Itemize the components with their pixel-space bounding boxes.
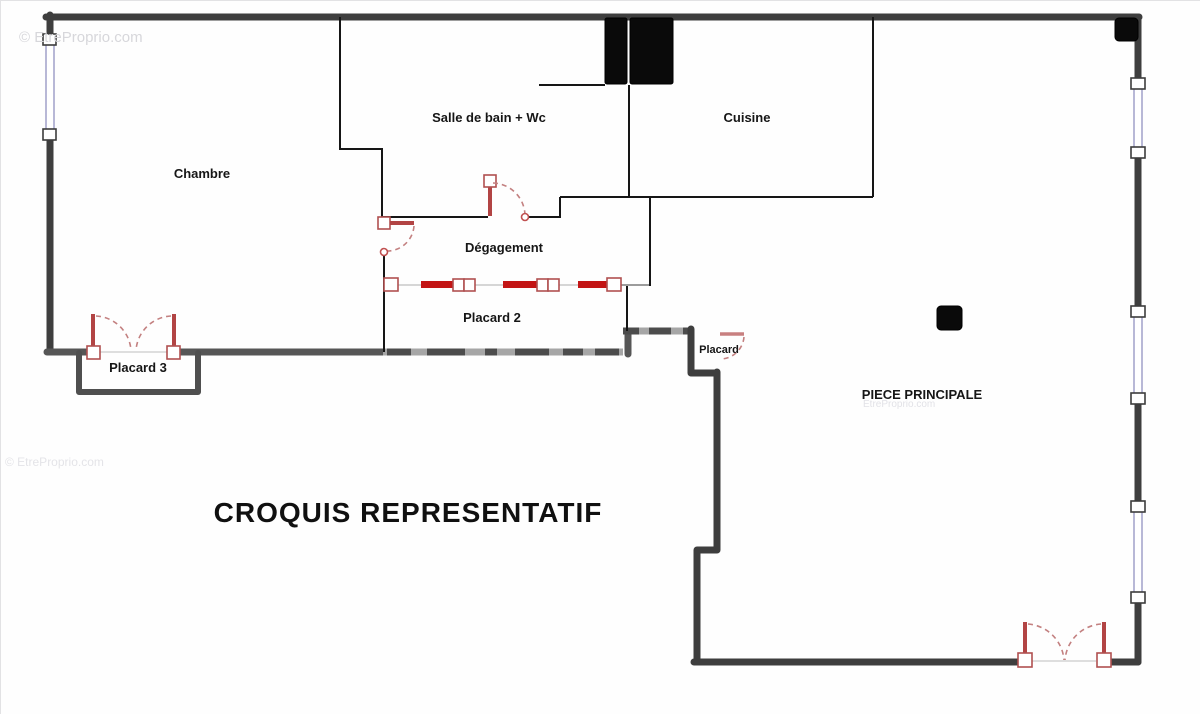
room-column — [937, 306, 962, 330]
corner-column — [1115, 18, 1138, 41]
window-right-2-cap-bottom — [1131, 393, 1145, 404]
duct-block-right — [630, 18, 673, 84]
wall-degagement-right — [619, 197, 650, 285]
window-right-2-glass — [1134, 315, 1142, 395]
sliding-end-left — [384, 278, 398, 291]
window-right-1-cap-bottom — [1131, 147, 1145, 158]
door-degagement-arc — [388, 226, 414, 251]
label-placard2: Placard 2 — [463, 310, 521, 325]
door-placard3-hinge-right — [167, 346, 180, 359]
window-right-1-glass — [1134, 87, 1142, 149]
sliding-panel-1 — [421, 281, 454, 288]
label-salle-de-bain: Salle de bain + Wc — [432, 110, 546, 125]
sliding-end-right — [607, 278, 621, 291]
window-right-1-cap-top — [1131, 78, 1145, 89]
sliding-mid-2b — [548, 279, 559, 291]
watermark-top-left: © EtreProprio.com — [19, 29, 143, 46]
watermark-mid-left: © EtreProprio.com — [5, 455, 104, 469]
label-placard3: Placard 3 — [109, 360, 167, 375]
door-bathroom-end — [522, 214, 529, 221]
wall-bathroom-bottom-right — [526, 197, 560, 217]
door-entrance — [1018, 622, 1111, 667]
window-right-3-cap-top — [1131, 501, 1145, 512]
sliding-doors-placard2 — [384, 278, 649, 291]
door-placard3-hinge-left — [87, 346, 100, 359]
duct-block-left — [605, 18, 627, 84]
wall-bathroom-left — [340, 17, 382, 217]
door-degagement-hinge — [378, 217, 390, 229]
sliding-panel-2 — [503, 281, 537, 288]
floor-plan: Chambre Salle de bain + Wc Cuisine Dégag… — [0, 0, 1200, 714]
label-degagement: Dégagement — [465, 240, 544, 255]
window-left — [43, 34, 56, 140]
window-right-3-glass — [1134, 510, 1142, 594]
sliding-mid-1a — [453, 279, 464, 291]
door-placard3 — [87, 314, 180, 359]
window-left-glass — [46, 43, 54, 133]
label-chambre: Chambre — [174, 166, 230, 181]
sliding-mid-1b — [464, 279, 475, 291]
sliding-mid-2a — [537, 279, 548, 291]
door-degagement — [378, 217, 414, 256]
window-right-3-cap-bottom — [1131, 592, 1145, 603]
window-right-3 — [1131, 501, 1145, 603]
label-placard: Placard — [699, 344, 739, 356]
door-bathroom — [484, 175, 529, 221]
watermark-center: EtreProprio.com — [863, 399, 935, 410]
sliding-panel-3 — [578, 281, 609, 288]
door-entrance-hinge-right — [1097, 653, 1111, 667]
door-entrance-hinge-left — [1018, 653, 1032, 667]
window-right-2 — [1131, 306, 1145, 404]
plan-title: CROQUIS REPRESENTATIF — [214, 497, 603, 528]
door-placard3-arc-right — [136, 316, 171, 350]
door-bathroom-cap — [484, 175, 496, 187]
window-left-cap-bottom — [43, 129, 56, 140]
floor-plan-canvas: Chambre Salle de bain + Wc Cuisine Dégag… — [1, 1, 1200, 714]
label-cuisine: Cuisine — [724, 110, 771, 125]
window-right-1 — [1131, 78, 1145, 158]
wall-pp-left — [697, 372, 717, 659]
door-entrance-arc-right — [1065, 624, 1101, 660]
window-right-2-cap-top — [1131, 306, 1145, 317]
door-bathroom-arc — [493, 183, 525, 215]
door-placard3-arc-left — [96, 316, 131, 350]
door-entrance-arc-left — [1028, 624, 1064, 660]
door-degagement-end — [381, 249, 388, 256]
